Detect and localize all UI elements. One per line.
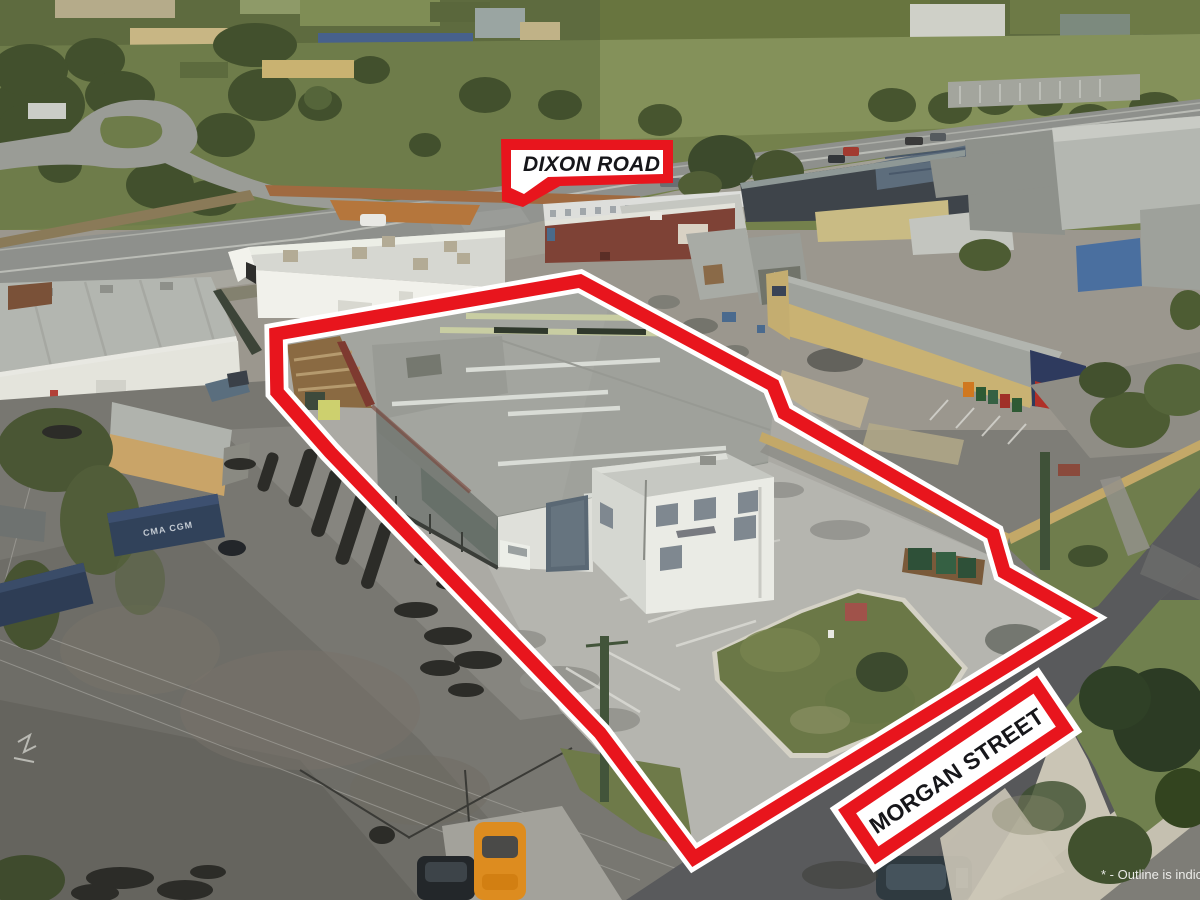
svg-text:* - Outline is indica: * - Outline is indica: [1101, 867, 1200, 882]
svg-text:DIXON ROAD: DIXON ROAD: [523, 153, 660, 176]
